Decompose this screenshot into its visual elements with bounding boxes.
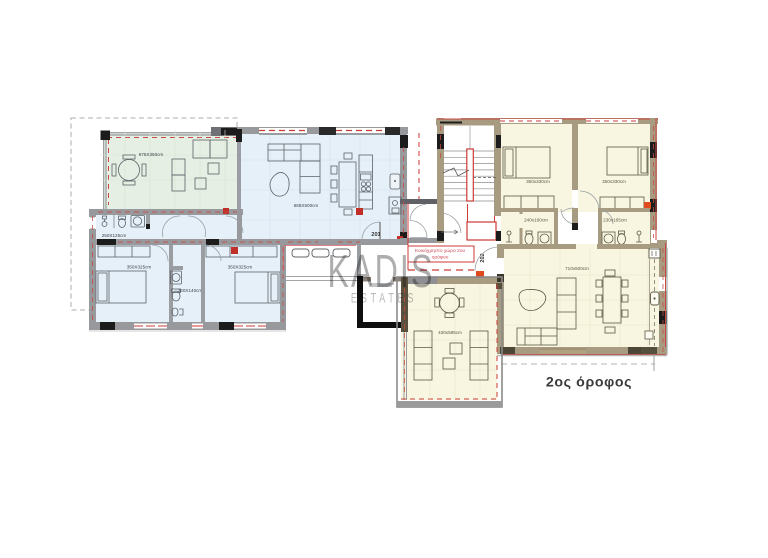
svg-text:230x165cm: 230x165cm: [603, 218, 627, 223]
svg-text:430x585cm: 430x585cm: [438, 330, 462, 335]
svg-text:350X325cm: 350X325cm: [228, 265, 253, 270]
svg-text:2ος όροφος: 2ος όροφος: [546, 375, 632, 391]
svg-text:350x330cm: 350x330cm: [526, 179, 550, 184]
svg-text:ESTATES: ESTATES: [351, 290, 417, 307]
svg-text:665X500cm: 665X500cm: [294, 203, 319, 208]
svg-text:350x330cm: 350x330cm: [602, 179, 626, 184]
svg-text:360X140cm: 360X140cm: [178, 288, 203, 293]
svg-text:350X325cm: 350X325cm: [127, 265, 152, 270]
svg-text:240x160cm: 240x160cm: [524, 218, 548, 223]
svg-text:675X350cm: 675X350cm: [139, 152, 164, 157]
svg-text:710x500cm: 710x500cm: [565, 266, 589, 271]
svg-text:250X125cm: 250X125cm: [102, 233, 127, 238]
svg-text:201: 201: [371, 232, 380, 238]
